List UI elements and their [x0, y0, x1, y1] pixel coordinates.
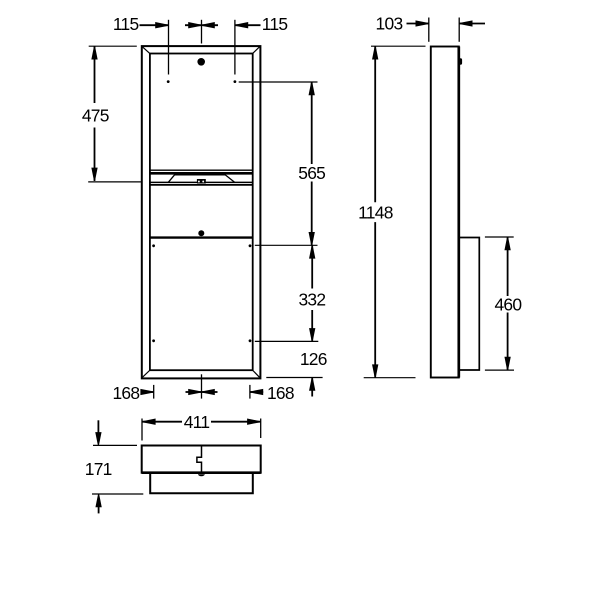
svg-text:168: 168 [267, 383, 294, 403]
svg-text:411: 411 [184, 412, 210, 432]
svg-text:168: 168 [112, 383, 139, 403]
svg-text:1148: 1148 [358, 203, 393, 223]
svg-text:115: 115 [262, 14, 288, 34]
svg-text:126: 126 [300, 349, 327, 369]
svg-text:565: 565 [298, 163, 325, 183]
svg-text:115: 115 [113, 14, 139, 34]
svg-text:460: 460 [494, 294, 521, 314]
svg-text:103: 103 [376, 13, 403, 33]
svg-text:171: 171 [85, 459, 112, 479]
svg-text:332: 332 [298, 290, 325, 310]
svg-text:475: 475 [82, 106, 109, 126]
